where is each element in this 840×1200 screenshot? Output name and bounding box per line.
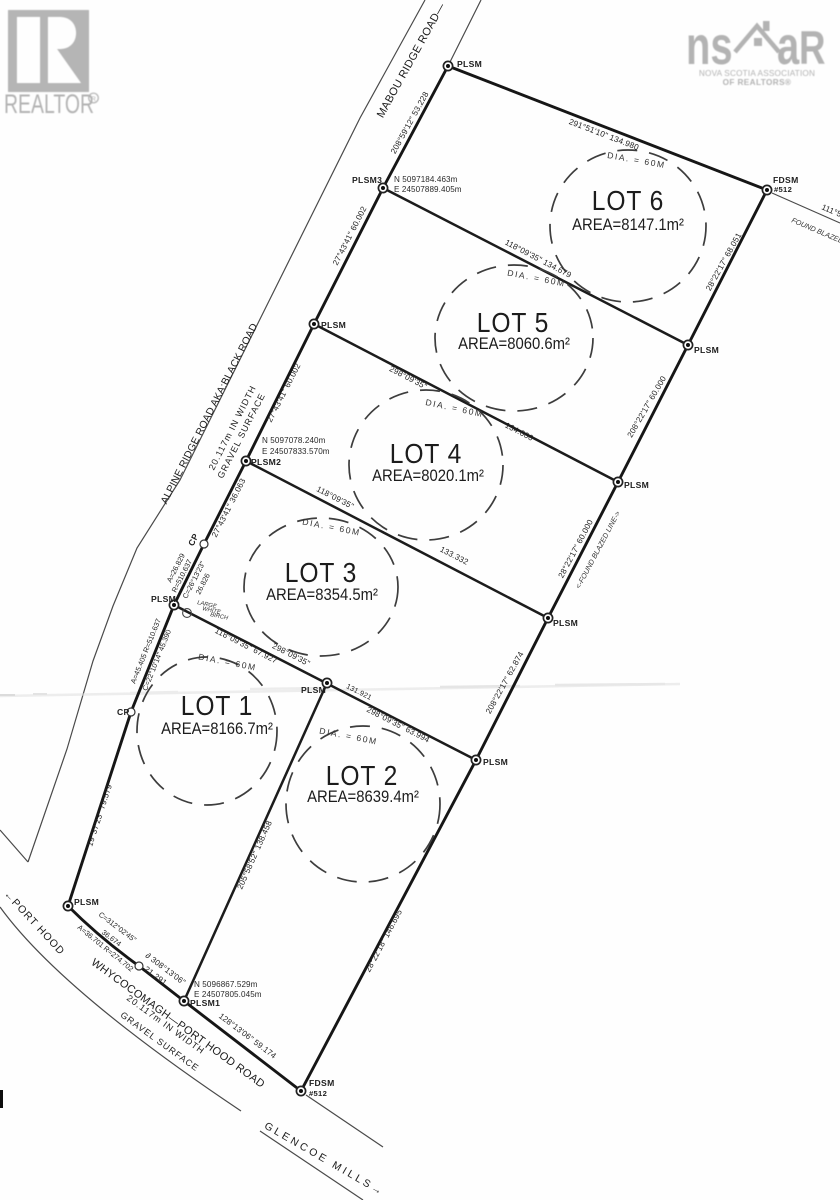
svg-text:AREA=8147.1m²: AREA=8147.1m²: [572, 216, 684, 234]
svg-text:LOT 6: LOT 6: [592, 185, 664, 217]
svg-text:PLSM: PLSM: [553, 618, 578, 628]
svg-text:R: R: [799, 22, 825, 74]
svg-text:FDSM: FDSM: [309, 1078, 335, 1088]
svg-text:LOT 5: LOT 5: [477, 307, 549, 339]
svg-text:a: a: [777, 16, 800, 76]
svg-text:PLSM: PLSM: [321, 320, 346, 330]
svg-text:FDSM: FDSM: [773, 175, 799, 185]
svg-text:AREA=8639.4m²: AREA=8639.4m²: [307, 788, 419, 806]
svg-text:AREA=8060.6m²: AREA=8060.6m²: [458, 335, 570, 353]
svg-text:N 5097184.463m: N 5097184.463m: [394, 175, 458, 184]
svg-text:PLSM: PLSM: [483, 757, 508, 767]
svg-text:LOT 4: LOT 4: [390, 438, 462, 470]
svg-text:N 5096867.529m: N 5096867.529m: [194, 980, 258, 989]
svg-text:LOT 2: LOT 2: [326, 760, 398, 792]
svg-text:LOT 1: LOT 1: [181, 690, 253, 722]
svg-text:PLSM: PLSM: [624, 480, 649, 490]
svg-text:AREA=8020.1m²: AREA=8020.1m²: [372, 467, 484, 485]
svg-text:REALTOR: REALTOR: [4, 89, 94, 119]
svg-text:PLSM: PLSM: [301, 685, 326, 695]
svg-text:PLSM: PLSM: [694, 345, 719, 355]
svg-text:N 5097078.240m: N 5097078.240m: [262, 436, 326, 445]
svg-text:LOT 3: LOT 3: [285, 557, 357, 589]
svg-text:E 24507889.405m: E 24507889.405m: [394, 185, 462, 194]
svg-text:OF REALTORS®: OF REALTORS®: [723, 78, 792, 87]
svg-text:ns: ns: [686, 16, 733, 76]
svg-text:PLSM1: PLSM1: [190, 998, 220, 1008]
svg-text:PLSM2: PLSM2: [251, 457, 281, 467]
svg-text:CP: CP: [117, 707, 130, 717]
svg-text:PLSM3: PLSM3: [352, 175, 382, 185]
svg-text:AREA=8354.5m²: AREA=8354.5m²: [266, 586, 378, 604]
svg-text:PLSM: PLSM: [151, 594, 176, 604]
svg-text:NOVA SCOTIA ASSOCIATION: NOVA SCOTIA ASSOCIATION: [699, 69, 815, 78]
svg-text:#512: #512: [774, 185, 792, 194]
svg-text:AREA=8166.7m²: AREA=8166.7m²: [161, 720, 273, 738]
svg-text:E 24507833.570m: E 24507833.570m: [262, 447, 330, 456]
svg-text:#512: #512: [309, 1089, 327, 1098]
svg-text:R: R: [91, 96, 96, 103]
svg-text:PLSM: PLSM: [457, 59, 482, 69]
svg-text:PLSM: PLSM: [74, 897, 99, 907]
